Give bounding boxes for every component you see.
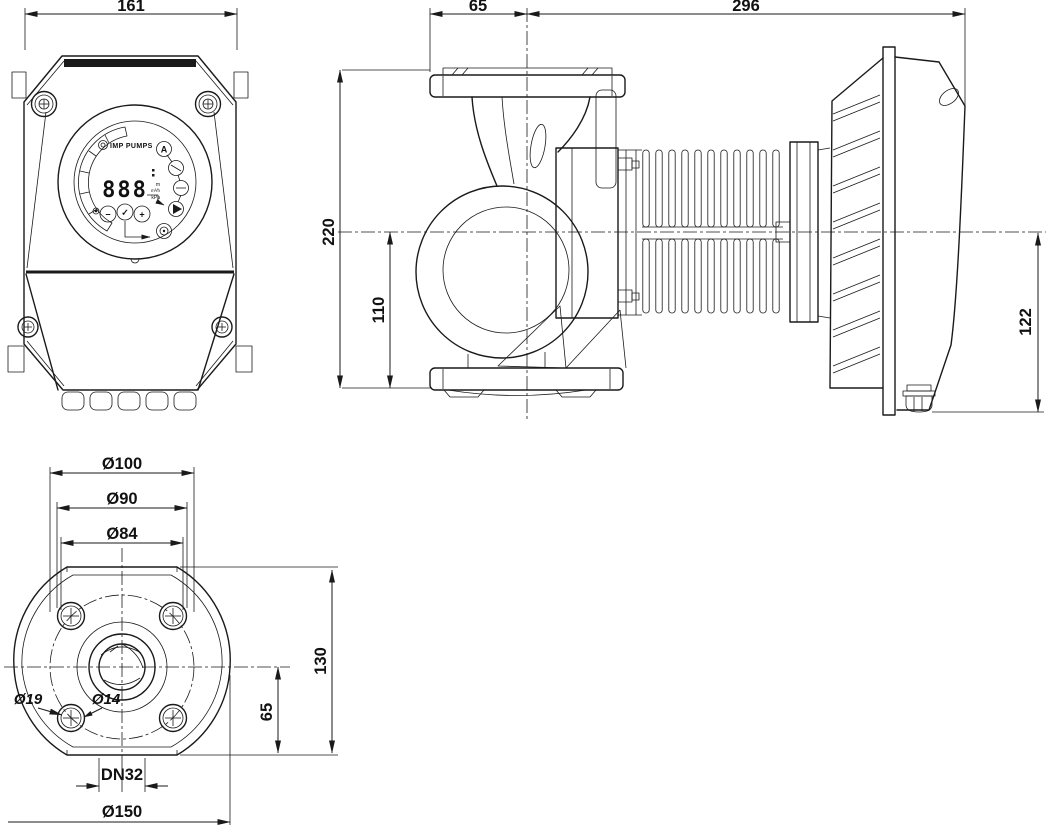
proportional-pressure-icon	[169, 161, 184, 176]
dim-height-130: 130	[180, 567, 338, 755]
bottom-flange	[430, 368, 623, 397]
pump-technical-drawing: 161	[0, 0, 1047, 825]
svg-text:A: A	[161, 145, 168, 155]
top-flange	[430, 68, 625, 97]
dim-label-d100: Ø100	[102, 455, 142, 473]
heatsink-tab	[12, 72, 26, 98]
side-view: 65 296 220 110 122	[320, 0, 1046, 420]
dim-offset-65: 65	[258, 667, 278, 753]
bottom-fins	[62, 392, 196, 410]
volute-casing	[416, 186, 626, 368]
dim-label-110: 110	[370, 297, 388, 324]
dim-label-130: 130	[312, 647, 330, 675]
bolt-hole	[160, 705, 187, 732]
bolt-hole	[58, 603, 85, 630]
svg-text:−: −	[105, 210, 110, 220]
bolt-hole	[160, 603, 187, 630]
screw	[196, 92, 221, 117]
pump-run-icon	[169, 202, 184, 217]
dim-label-d84: Ø84	[106, 525, 138, 543]
dim-label-122: 122	[1017, 308, 1035, 336]
heatsink-tab	[8, 346, 24, 372]
dim-label-220: 220	[320, 218, 338, 246]
standby-icon	[157, 224, 172, 239]
bolt-hole	[58, 705, 85, 732]
dim-label-296: 296	[732, 0, 760, 15]
heatsink-tab	[236, 346, 252, 372]
bottom-view: Ø100 Ø90 Ø84	[4, 455, 338, 825]
brand-label: IMP PUMPS	[110, 143, 153, 150]
svg-text:+: +	[139, 210, 144, 220]
electronics-box	[830, 47, 965, 415]
dim-label-65b: 65	[258, 703, 276, 721]
dim-label-front-width: 161	[117, 0, 145, 15]
motor-fins	[642, 150, 790, 313]
dim-hole-14: Ø14	[84, 691, 121, 717]
handle-hole	[936, 85, 961, 109]
screw	[32, 92, 57, 117]
dim-length-296: 296	[527, 0, 965, 108]
constant-pressure-icon	[174, 181, 189, 196]
dim-box-height-122: 122	[932, 233, 1044, 412]
ok-button: ✓	[117, 204, 133, 220]
control-panel: IMP PUMPS A 888 m m³/h kPa	[58, 105, 212, 263]
dim-hole-19: Ø19	[14, 691, 62, 715]
screw	[212, 317, 232, 337]
motor-head	[556, 148, 642, 318]
dim-front-width: 161	[25, 0, 237, 50]
screw	[18, 317, 38, 337]
display-units: m m³/h kPa	[151, 169, 160, 201]
dim-label-d150: Ø150	[102, 803, 142, 821]
dim-height-220: 220	[320, 70, 432, 388]
dim-axis-height-110: 110	[370, 232, 390, 388]
box-fins	[833, 95, 880, 373]
dim-flange-offset: 65	[430, 0, 527, 72]
dim-label-d90: Ø90	[106, 490, 137, 508]
drawing-canvas: 161	[0, 0, 1047, 825]
svg-text:m³/h: m³/h	[151, 188, 160, 193]
dim-label-65: 65	[469, 0, 487, 15]
seven-segment-display: 888	[102, 178, 148, 203]
minus-button: −	[100, 206, 116, 222]
dim-label-d14: Ø14	[92, 691, 121, 708]
front-view: 161	[8, 0, 252, 410]
dim-label-d19: Ø19	[14, 691, 43, 708]
pump-neck	[472, 90, 616, 188]
top-seal-strip	[64, 59, 196, 67]
svg-text:kPa: kPa	[151, 195, 160, 201]
svg-text:✓: ✓	[121, 208, 129, 218]
plus-button: +	[134, 206, 150, 222]
heatsink-tab	[234, 72, 248, 98]
auto-mode-icon: A	[157, 142, 172, 157]
